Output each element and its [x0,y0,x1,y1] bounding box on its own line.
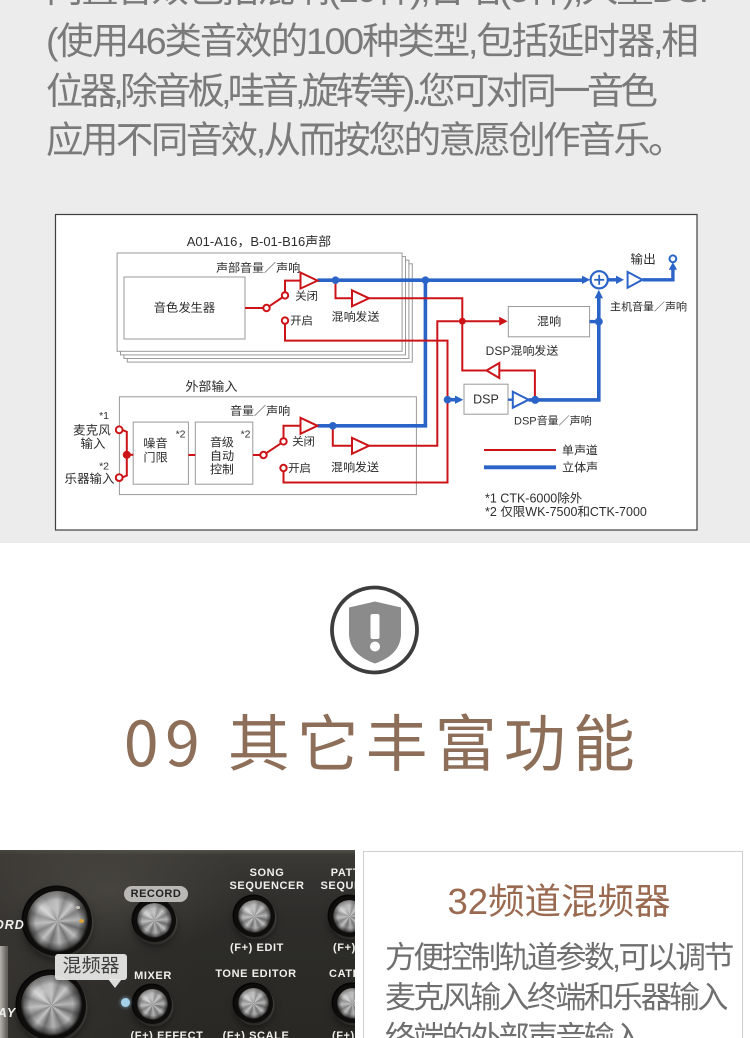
svg-text:输入: 输入 [80,437,106,451]
svg-text:声部音量／声响: 声部音量／声响 [215,261,300,275]
svg-text:单声道: 单声道 [562,444,598,458]
svg-text:混响发送: 混响发送 [331,310,379,324]
svg-text:混响发送: 混响发送 [331,461,379,475]
svg-text:*2: *2 [241,429,251,441]
svg-text:关闭: 关闭 [295,290,318,303]
svg-text:乐器输入: 乐器输入 [64,472,115,486]
svg-text:音量／声响: 音量／声响 [230,404,290,418]
svg-text:*1 CTK-6000除外: *1 CTK-6000除外 [485,492,583,506]
svg-text:主机音量／声响: 主机音量／声响 [610,301,687,314]
svg-text:DSP音量／声响: DSP音量／声响 [514,415,592,428]
svg-text:噪音: 噪音 [143,437,167,451]
svg-text:*1: *1 [99,410,109,422]
svg-text:音色发生器: 音色发生器 [154,301,216,315]
svg-text:麦克风: 麦克风 [73,424,111,438]
svg-text:*2 仅限WK-7500和CTK-7000: *2 仅限WK-7500和CTK-7000 [485,505,647,519]
svg-text:音级: 音级 [210,436,234,450]
svg-text:*2: *2 [176,429,186,441]
svg-text:*2: *2 [99,461,109,473]
svg-text:外部输入: 外部输入 [185,379,237,394]
svg-text:DSP: DSP [473,393,499,407]
svg-text:DSP混响发送: DSP混响发送 [486,344,559,358]
svg-text:控制: 控制 [210,463,234,477]
svg-text:自动: 自动 [210,449,234,463]
svg-text:开启: 开启 [288,462,311,475]
svg-text:开启: 开启 [290,315,313,328]
svg-text:关闭: 关闭 [292,436,315,449]
svg-text:混响: 混响 [537,315,561,329]
svg-text:立体声: 立体声 [562,461,598,475]
svg-text:A01-A16，B-01-B16声部: A01-A16，B-01-B16声部 [187,234,333,249]
svg-text:输出: 输出 [630,253,655,267]
svg-text:门限: 门限 [143,451,167,465]
